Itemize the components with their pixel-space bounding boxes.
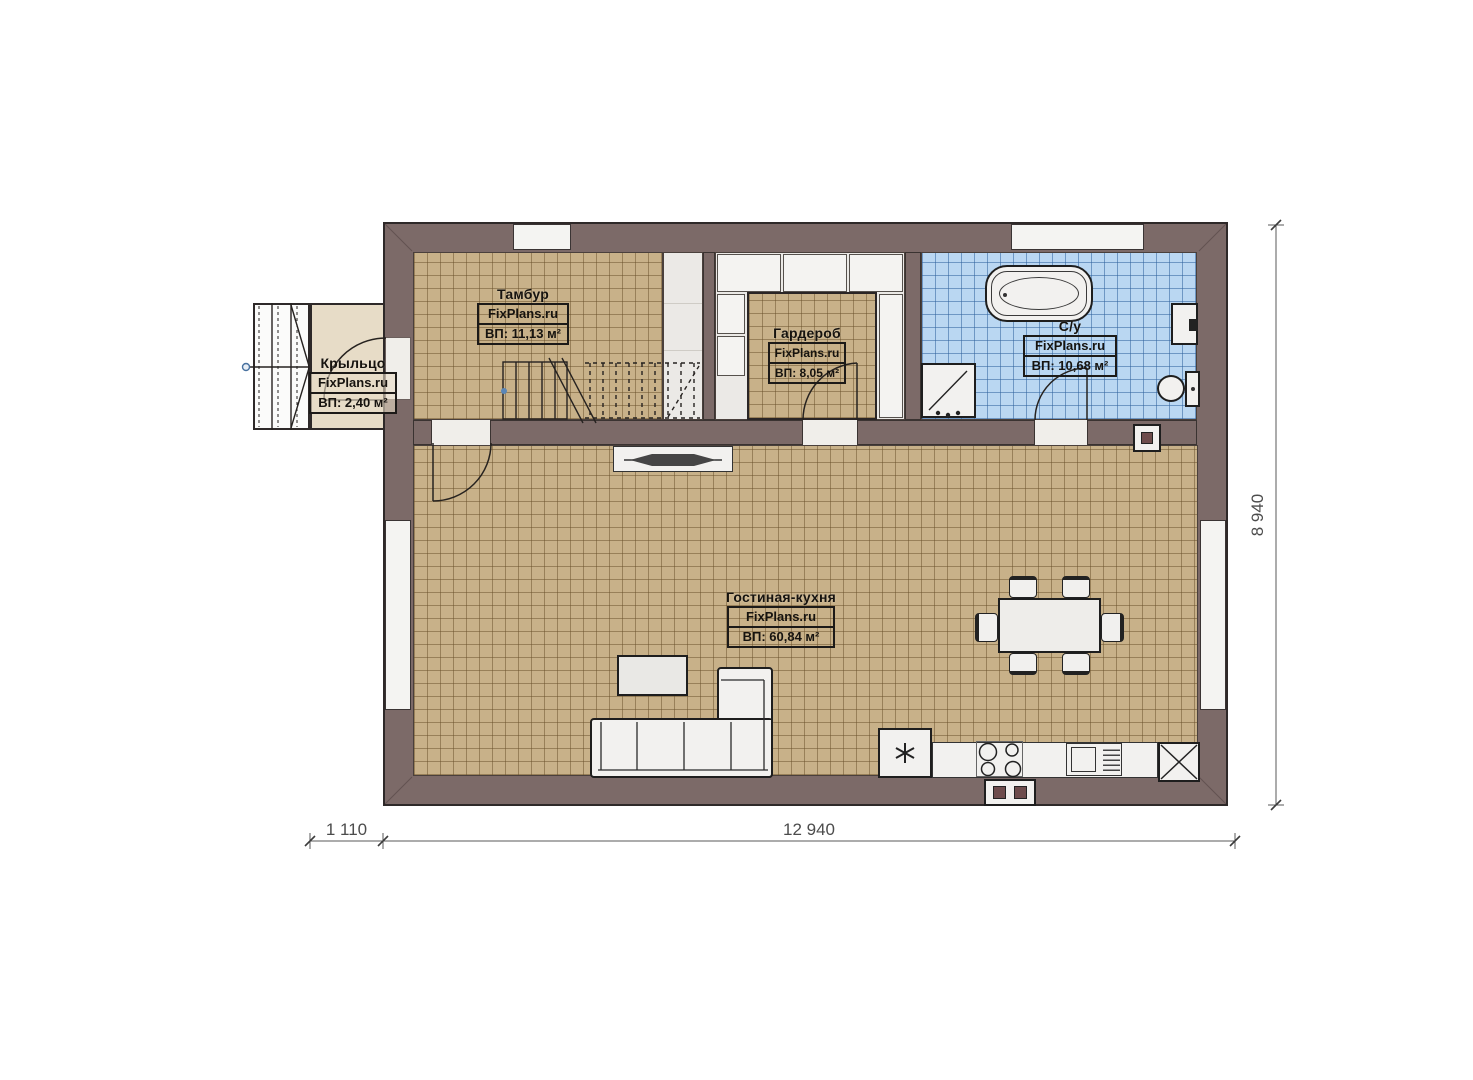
dining-chair (1062, 653, 1090, 675)
room-label-tambur: Тамбур FixPlans.ru ВП: 11,13 м² (477, 286, 569, 345)
room-area: ВП: 10,68 м² (1025, 355, 1115, 375)
window-top-right (1011, 224, 1144, 250)
dining-chair (1009, 653, 1037, 675)
room-name: Гостиная-кухня (721, 589, 841, 605)
room-name: С/у (1023, 318, 1117, 334)
porch-steps (253, 303, 310, 430)
toilet-bowl (1157, 375, 1185, 402)
floor-plan: Тамбур FixPlans.ru ВП: 11,13 м² Гардероб… (0, 0, 1473, 1080)
room-info-box: FixPlans.ru ВП: 11,13 м² (477, 303, 569, 345)
closet-unit (849, 254, 903, 292)
shower (921, 363, 976, 418)
dimension-house-width: 12 940 (383, 820, 1235, 840)
window-top-left (513, 224, 571, 250)
room-label-garderob: Гардероб FixPlans.ru ВП: 8,05 м² (768, 325, 846, 384)
dimension-porch-depth: 1 110 (310, 820, 383, 840)
room-label-porch: Крыльцо FixPlans.ru ВП: 2,40 м² (309, 355, 397, 414)
interior-wall-vertical-1 (703, 252, 715, 420)
room-name: Крыльцо (309, 355, 397, 371)
vent-shaft (1133, 424, 1161, 452)
closet-unit (717, 254, 781, 292)
room-info-box: FixPlans.ru ВП: 2,40 м² (309, 372, 397, 414)
closet-unit (717, 336, 745, 376)
stair-landing-floor (663, 252, 703, 420)
room-brand: FixPlans.ru (311, 374, 395, 392)
chimney-block (984, 779, 1036, 806)
bathtub (985, 265, 1093, 322)
oven (1066, 743, 1122, 776)
room-brand: FixPlans.ru (729, 608, 833, 626)
room-name: Тамбур (477, 286, 569, 302)
fridge (878, 728, 932, 778)
interior-wall-horizontal (413, 420, 432, 445)
room-label-living: Гостиная-кухня FixPlans.ru ВП: 60,84 м² (721, 589, 841, 648)
room-label-su: С/у FixPlans.ru ВП: 10,68 м² (1023, 318, 1117, 377)
kitchen-sink (1158, 742, 1200, 782)
interior-wall-vertical-2 (905, 252, 921, 420)
room-area: ВП: 60,84 м² (729, 626, 833, 646)
kitchen-counter (932, 742, 1158, 778)
interior-wall-horizontal (857, 420, 1035, 445)
window-right (1200, 520, 1226, 710)
dining-table (998, 598, 1101, 653)
stove (976, 741, 1023, 777)
sofa-corner-patch (721, 720, 771, 774)
dining-chair (1101, 613, 1124, 642)
dimension-house-height: 8 940 (1248, 470, 1268, 560)
coffee-table (617, 655, 688, 696)
room-name: Гардероб (768, 325, 846, 341)
closet-unit (717, 294, 745, 334)
closet-unit (879, 294, 903, 418)
door-opening-garderob (803, 420, 857, 445)
door-opening-bathroom (1035, 420, 1087, 445)
room-area: ВП: 11,13 м² (479, 323, 567, 343)
dining-chair (975, 613, 998, 642)
room-area: ВП: 8,05 м² (770, 362, 844, 382)
room-brand: FixPlans.ru (1025, 337, 1115, 355)
room-info-box: FixPlans.ru ВП: 60,84 м² (727, 606, 835, 648)
room-brand: FixPlans.ru (479, 305, 567, 323)
tv-console (613, 446, 733, 472)
closet-unit (783, 254, 847, 292)
landing-shelf-line (664, 303, 702, 304)
dining-chair (1009, 576, 1037, 598)
window-left (385, 520, 411, 710)
landing-shelf-line (664, 350, 702, 351)
toilet-tank (1185, 371, 1200, 407)
room-info-box: FixPlans.ru ВП: 8,05 м² (768, 342, 846, 384)
room-area: ВП: 2,40 м² (311, 392, 395, 412)
room-info-box: FixPlans.ru ВП: 10,68 м² (1023, 335, 1117, 377)
door-opening-living (432, 420, 490, 445)
dining-chair (1062, 576, 1090, 598)
interior-wall-horizontal (490, 420, 803, 445)
room-brand: FixPlans.ru (770, 344, 844, 362)
bathroom-sink (1171, 303, 1198, 345)
